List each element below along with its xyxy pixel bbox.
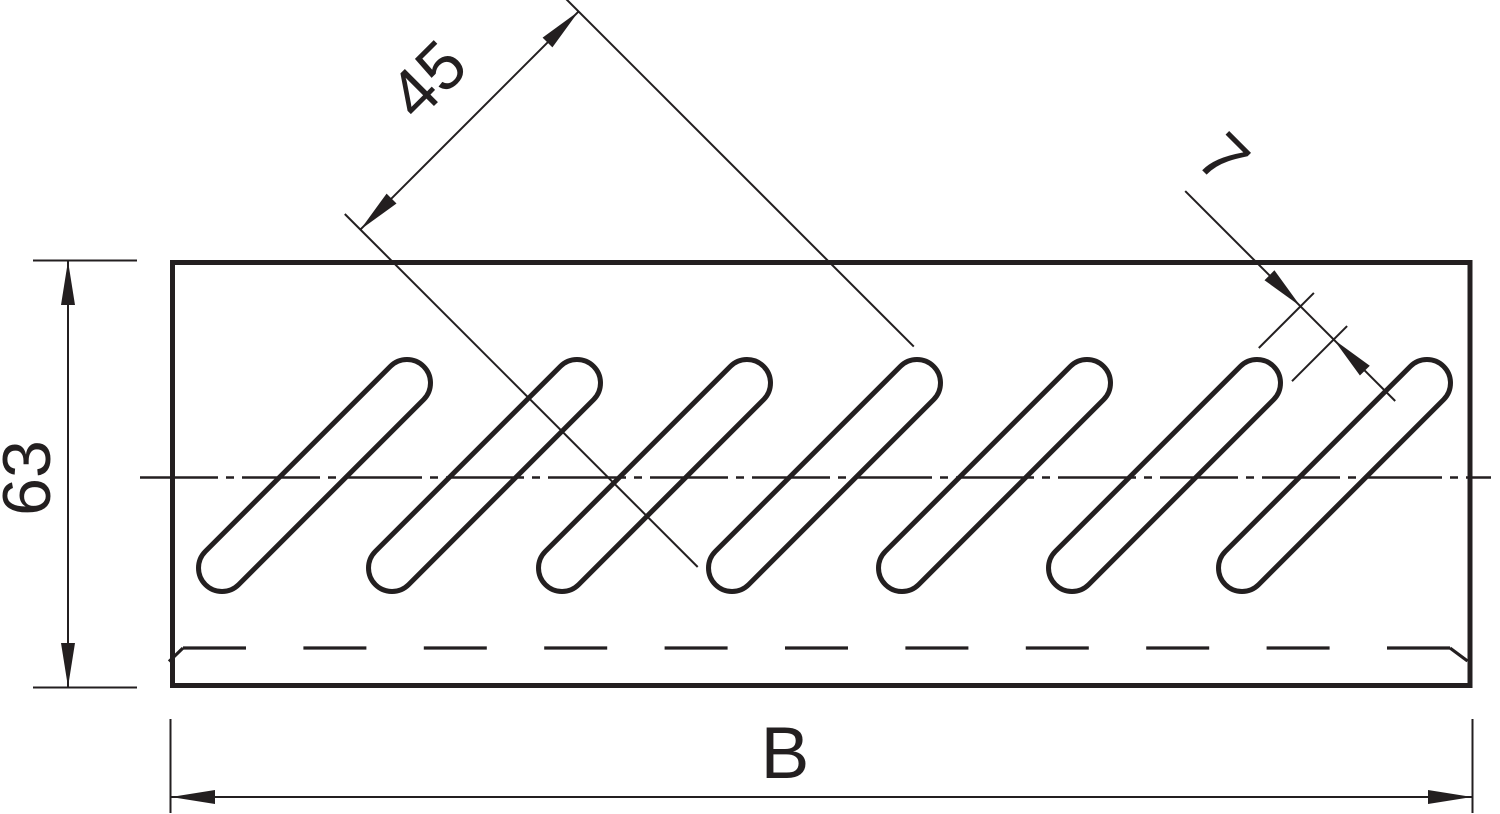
dimension-label-width: B xyxy=(761,713,810,794)
dimension-label-slot-width: 7 xyxy=(1183,118,1263,198)
dimension-line xyxy=(360,11,578,229)
dimension-slot-width: 7 xyxy=(1183,118,1395,401)
slots-group xyxy=(189,350,1460,601)
dimension-label-slot-length: 45 xyxy=(374,26,481,133)
arrowhead-inward-lower xyxy=(1334,340,1370,376)
slot-hole-outline xyxy=(1209,350,1460,601)
plate-view xyxy=(140,263,1491,686)
slot-hole-outline xyxy=(359,350,610,601)
arrowhead-inward-upper xyxy=(1265,270,1301,306)
arrowhead-down xyxy=(61,643,75,687)
slot-hole-outline xyxy=(189,350,440,601)
hidden-edge-right-bevel xyxy=(1450,648,1468,661)
dimension-plate-width: B xyxy=(171,713,1473,813)
extension-line-upper xyxy=(563,0,914,347)
drawing-page: 63 B 45 7 xyxy=(0,0,1500,814)
slot-hole-outline xyxy=(869,350,1120,601)
hidden-edge-line xyxy=(169,648,1468,662)
slot-hole-outline xyxy=(529,350,780,601)
dimension-slot-length: 45 xyxy=(345,0,914,567)
extension-line-lower xyxy=(345,214,698,567)
plate-outline xyxy=(173,263,1471,686)
arrowhead-lower-left xyxy=(360,194,396,230)
arrowhead-upper-right xyxy=(543,11,579,47)
arrowhead-right xyxy=(1428,790,1472,804)
dimension-label-height: 63 xyxy=(0,440,65,516)
engineering-drawing-canvas: 63 B 45 7 xyxy=(0,0,1500,814)
arrowhead-left xyxy=(171,790,215,804)
arrowhead-up xyxy=(61,261,75,305)
extension-tick-lower xyxy=(1292,326,1347,381)
dimension-plate-height: 63 xyxy=(0,261,137,688)
slot-hole-outline xyxy=(699,350,950,601)
extension-tick-upper xyxy=(1259,293,1314,348)
slot-hole-outline xyxy=(1039,350,1290,601)
